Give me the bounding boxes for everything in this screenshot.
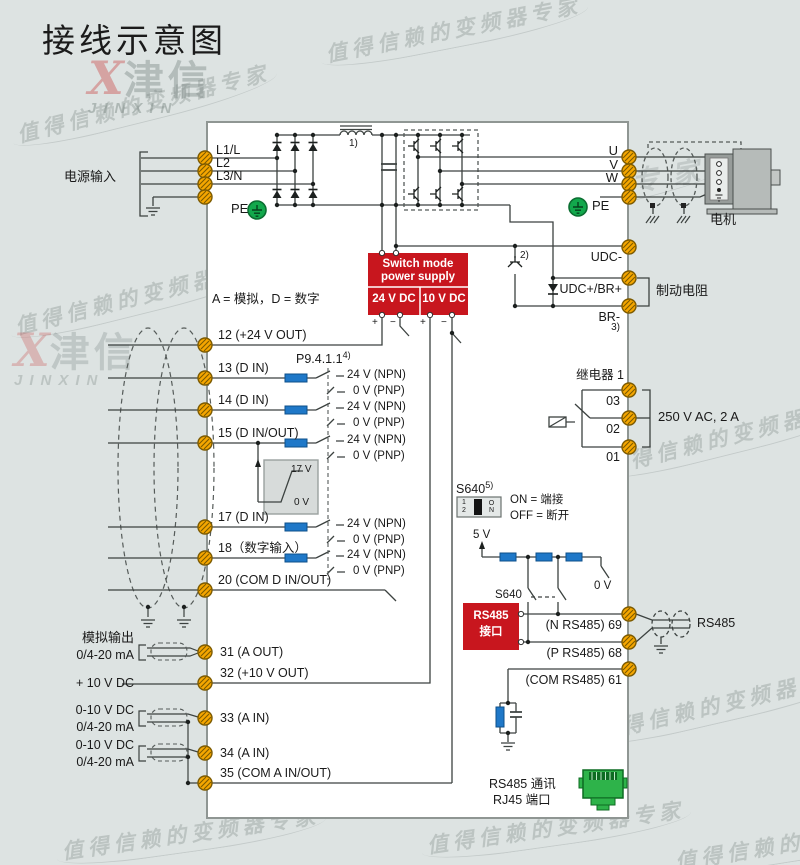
smps-24v-label: 24 V DC — [368, 293, 420, 306]
terminal-label-34: 34 (A IN) — [220, 746, 269, 760]
earth-icon — [654, 646, 668, 653]
power-input-label: 电源输入 — [64, 170, 116, 185]
termination-resistor — [536, 553, 552, 561]
note-4: 4) — [343, 350, 351, 360]
smps-pin — [449, 312, 454, 317]
terminal-ground-out — [622, 190, 636, 204]
terminal-12 — [198, 338, 212, 352]
termination-resistor — [566, 553, 582, 561]
terminal-label-31: 31 (A OUT) — [220, 645, 283, 659]
terminal-label-61: (COM RS485) 61 — [518, 673, 622, 687]
polarity-plus: + — [372, 317, 378, 329]
polarity-minus: − — [441, 317, 447, 329]
rs485-cable — [636, 611, 690, 644]
dip-on-label: ON — [488, 500, 495, 514]
shield-bond — [650, 203, 655, 208]
terminal-61 — [622, 662, 636, 676]
smps-pin — [397, 312, 402, 317]
udc-plus-label: UDC+/BR+ — [522, 282, 622, 296]
udc-minus-label: UDC- — [542, 250, 622, 264]
terminal-69 — [622, 607, 636, 621]
rs485-box-line1: RS485 — [463, 610, 519, 623]
bias-resistor — [496, 707, 504, 727]
terminal-label-17: 17 (D IN) — [218, 510, 269, 524]
dip-pos-1: 1 — [462, 499, 466, 506]
pe-label-output: PE — [592, 199, 609, 214]
smps-pin — [393, 250, 398, 255]
pnp-label: 0 V (PNP) — [353, 417, 405, 430]
ain1-current-label: 0/4-20 mA — [58, 720, 134, 734]
terminal-35 — [198, 776, 212, 790]
smps-pin — [379, 312, 384, 317]
pe-terminal-output — [569, 198, 587, 216]
earth-icon — [646, 216, 659, 223]
ain2-current-label: 0/4-20 mA — [58, 755, 134, 769]
terminal-34 — [198, 746, 212, 760]
terminal-14 — [198, 403, 212, 417]
terminal-V — [622, 164, 636, 178]
smps-title-2: power supply — [368, 271, 468, 284]
terminal-L3 — [198, 177, 212, 191]
relay-contact-03: 03 — [592, 394, 620, 408]
s640-rule-off: OFF = 断开 — [510, 510, 569, 523]
terminal-label-32: 32 (+10 V OUT) — [220, 666, 309, 680]
note-5: 5) — [485, 480, 493, 490]
relay-contact-01: 01 — [592, 450, 620, 464]
motor-icon — [705, 149, 780, 214]
terminal-ground-in — [198, 190, 212, 204]
terminal-relay-01 — [622, 440, 636, 454]
polarity-minus: − — [390, 317, 396, 329]
terminal-UDC-minus — [622, 240, 636, 254]
ref-10v-label: + 10 V DC — [58, 676, 134, 690]
terminal-18 — [198, 551, 212, 565]
shield-bond — [681, 203, 686, 208]
terminal-L1 — [198, 151, 212, 165]
terminal-label-L3: L3/N — [216, 169, 242, 183]
input-resistor — [285, 523, 307, 531]
terminal-label-15: 15 (D IN/OUT) — [218, 426, 299, 440]
terminal-13 — [198, 371, 212, 385]
analog-out-label: 模拟输出 — [58, 631, 134, 646]
zero-volt-label: 0 V — [594, 580, 611, 593]
terminal-label-68: (P RS485) 68 — [540, 646, 622, 660]
threshold-low: 0 V — [294, 497, 309, 509]
terminal-BR-minus — [622, 299, 636, 313]
motor-label: 电机 — [710, 213, 736, 228]
rs485-pin — [518, 611, 523, 616]
pnp-label: 0 V (PNP) — [353, 565, 405, 578]
relay-title: 继电器 1 — [548, 368, 624, 382]
terminal-68 — [622, 635, 636, 649]
pe-terminal-input — [248, 201, 266, 219]
terminal-20 — [198, 583, 212, 597]
dip-switch-lever — [474, 499, 482, 515]
io-legend: A = 模拟，D = 数字 — [212, 292, 320, 306]
terminal-31 — [198, 645, 212, 659]
note-3: 3) — [600, 322, 620, 334]
terminal-17 — [198, 520, 212, 534]
ain2-voltage-label: 0-10 V DC — [58, 738, 134, 752]
terminal-label-W: W — [598, 171, 618, 186]
brake-resistor-bracket — [637, 278, 649, 306]
terminal-label-69: (N RS485) 69 — [540, 618, 622, 632]
param-ref-label: P9.4.1.14) — [296, 350, 351, 367]
terminal-U — [622, 150, 636, 164]
terminal-label-13: 13 (D IN) — [218, 361, 269, 375]
schematic-canvas — [0, 0, 800, 865]
smps-pin — [427, 312, 432, 317]
earth-icon — [177, 620, 191, 627]
terminal-UDC-plus — [622, 271, 636, 285]
analog-cable-shields — [151, 643, 187, 761]
control-cable-wires — [108, 345, 198, 617]
terminal-15 — [198, 436, 212, 450]
terminal-33 — [198, 711, 212, 725]
termination-resistor — [500, 553, 516, 561]
input-resistor — [285, 406, 307, 414]
terminal-label-35: 35 (COM A IN/OUT) — [220, 766, 331, 780]
s640-rule-on: ON = 端接 — [510, 494, 563, 507]
earth-icon — [141, 620, 155, 627]
pnp-label: 0 V (PNP) — [353, 450, 405, 463]
s640-name: S640 — [456, 482, 485, 496]
pnp-label: 0 V (PNP) — [353, 534, 405, 547]
note-1: 1) — [349, 138, 358, 150]
rs485-box-line2: 接口 — [463, 626, 519, 639]
analog-out-range: 0/4-20 mA — [58, 648, 134, 662]
page-title: 接线示意图 — [42, 14, 227, 62]
terminal-label-20: 20 (COM D IN/OUT) — [218, 573, 331, 587]
terminal-label-14: 14 (D IN) — [218, 393, 269, 407]
smps-10v-label: 10 V DC — [420, 293, 468, 306]
terminal-W — [622, 177, 636, 191]
smps-pin — [379, 250, 384, 255]
earth-icon — [146, 208, 160, 215]
earth-icon — [677, 216, 690, 223]
terminal-32 — [198, 676, 212, 690]
brake-resistor-label: 制动电阻 — [656, 284, 708, 299]
dip-pos-2: 2 — [462, 507, 466, 514]
relay-contact-02: 02 — [592, 422, 620, 436]
npn-label: 24 V (NPN) — [347, 434, 406, 447]
terminal-label-18: 18（数字输入） — [218, 541, 307, 555]
rs485-cable-label: RS485 — [697, 616, 735, 630]
terminal-label-33: 33 (A IN) — [220, 711, 269, 725]
npn-label: 24 V (NPN) — [347, 369, 406, 382]
param-ref: P9.4.1.1 — [296, 352, 343, 366]
rj45-port-line1: RS485 通讯 — [489, 777, 556, 791]
terminal-L2 — [198, 164, 212, 178]
power-input-wiring — [140, 152, 198, 216]
control-cable-shield — [118, 328, 214, 608]
npn-label: 24 V (NPN) — [347, 518, 406, 531]
terminal-relay-03 — [622, 383, 636, 397]
wiring-diagram-page: 值得信赖的变频器专家 值得信赖的变频器专家 值得信赖的变频器专家 值得信赖的变频… — [0, 0, 800, 865]
s640-switch-label: S640 — [495, 589, 522, 602]
npn-label: 24 V (NPN) — [347, 549, 406, 562]
pnp-label: 0 V (PNP) — [353, 385, 405, 398]
terminal-label-12: 12 (+24 V OUT) — [218, 328, 307, 342]
note-2: 2) — [520, 250, 529, 262]
input-resistor — [285, 374, 307, 382]
ain1-voltage-label: 0-10 V DC — [58, 703, 134, 717]
pe-label-input: PE — [231, 202, 248, 217]
terminal-relay-02 — [622, 411, 636, 425]
rs485-pin — [518, 639, 523, 644]
rj45-port-line2: RJ45 端口 — [493, 793, 551, 807]
threshold-high: 17 V — [291, 464, 312, 476]
smps-title-1: Switch mode — [368, 258, 468, 271]
s640-label: S6405) — [456, 480, 493, 497]
npn-label: 24 V (NPN) — [347, 401, 406, 414]
five-volt-label: 5 V — [473, 529, 490, 542]
relay-rating: 250 V AC, 2 A — [658, 410, 739, 425]
polarity-plus: + — [420, 317, 426, 329]
